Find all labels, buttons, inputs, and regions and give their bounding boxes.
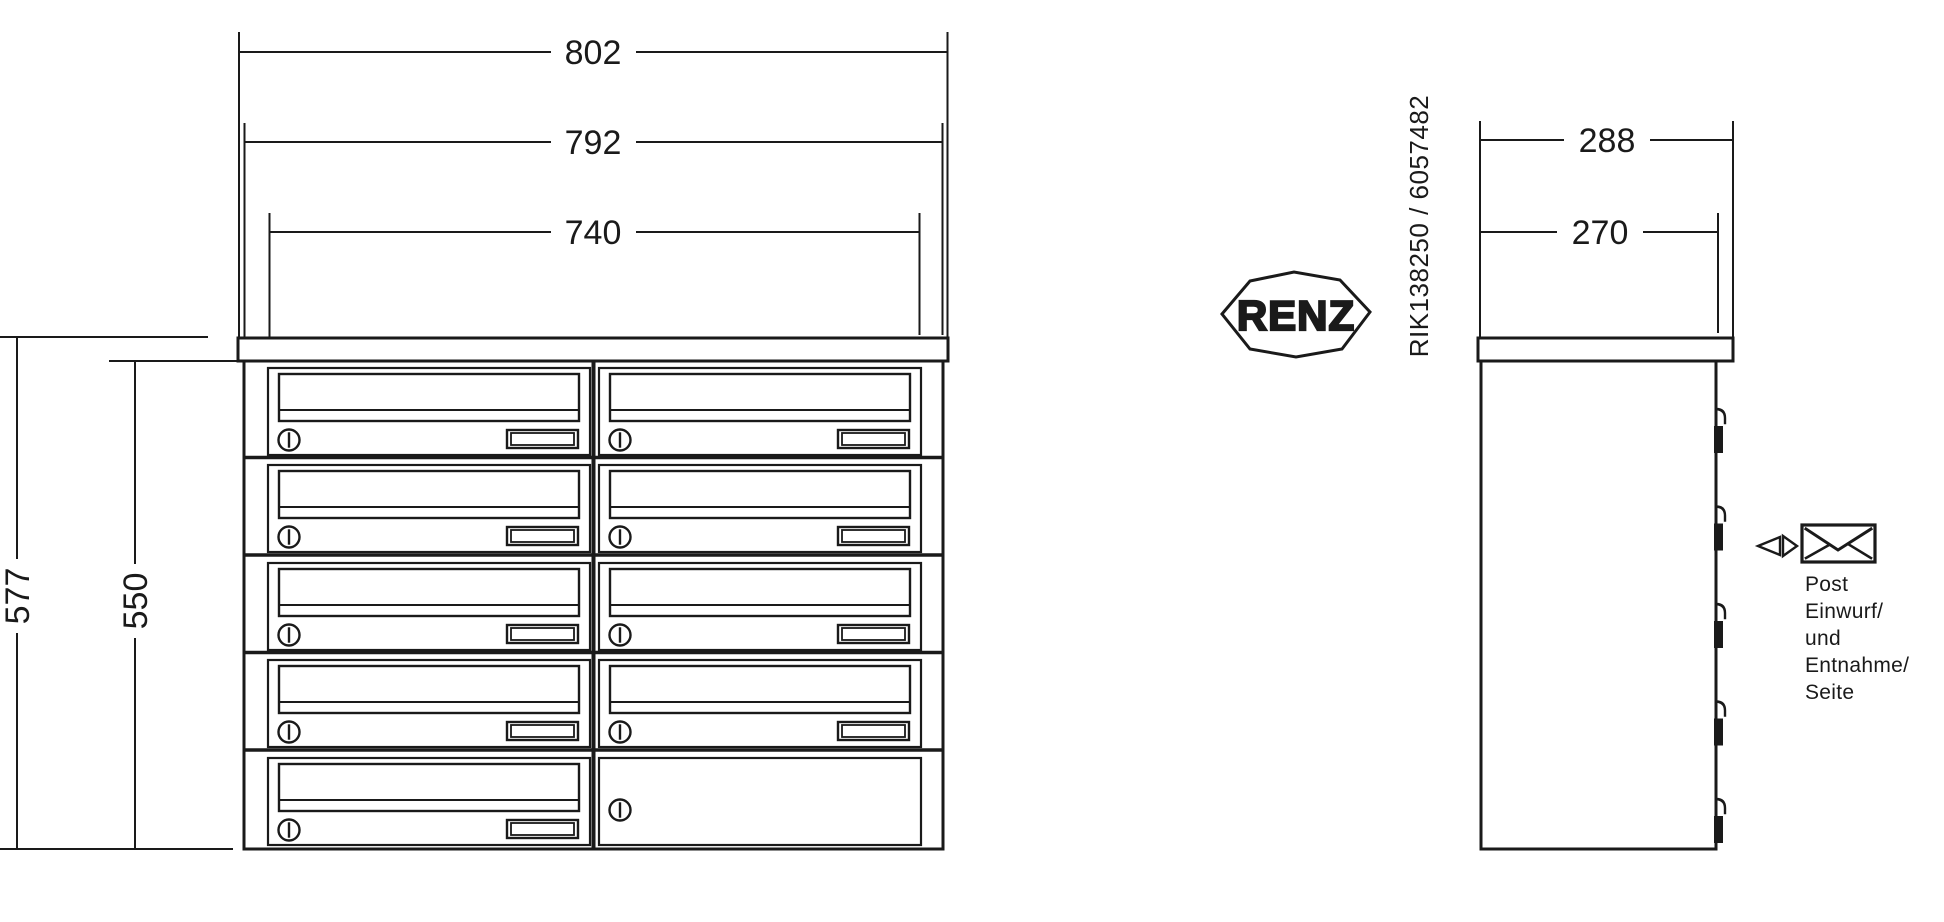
empty-compartment-r5-right: [599, 758, 921, 845]
dim-label-577: 577: [0, 568, 37, 625]
side-cabinet-body: [1481, 361, 1716, 849]
arrow-right-icon: [1783, 536, 1797, 556]
note-line-4: Entnahme/: [1805, 654, 1909, 677]
dim-label-792: 792: [565, 124, 622, 162]
mailbox-door-r1-left: [268, 368, 590, 455]
side-roof-cap: [1478, 338, 1733, 361]
arrow-left-icon: [1758, 537, 1780, 555]
note-line-3: und: [1805, 627, 1841, 650]
front-dimensions: [0, 33, 948, 849]
note-line-5: Seite: [1805, 681, 1854, 704]
front-roof-cap: [238, 338, 948, 361]
mailbox-door-r3-left: [268, 563, 590, 650]
part-number-label: RIK138250 / 6057482: [1404, 95, 1434, 358]
front-view: [238, 338, 948, 849]
drawing-canvas: 802 792 740 577 550 288 270: [0, 0, 1944, 922]
note-line-1: Post: [1805, 573, 1848, 596]
mailbox-door-r1-right: [599, 368, 921, 455]
mailbox-door-r3-right: [599, 563, 921, 650]
technical-drawing-sheet: 802 792 740 577 550 288 270: [0, 0, 1944, 922]
side-view: [1478, 338, 1733, 849]
mailbox-door-r4-right: [599, 660, 921, 747]
mailbox-door-r2-right: [599, 465, 921, 552]
renz-logo-text: RENZ: [1237, 292, 1355, 339]
brand-logo: RENZ: [1222, 272, 1370, 357]
mailbox-door-r5-left: [268, 758, 590, 845]
post-access-note: Post Einwurf/ und Entnahme/ Seite: [1758, 525, 1909, 704]
envelope-icon: [1802, 525, 1875, 562]
dim-label-740: 740: [565, 214, 622, 252]
dim-label-550: 550: [117, 573, 155, 630]
mailbox-door-r2-left: [268, 465, 590, 552]
mailbox-door-r4-left: [268, 660, 590, 747]
dim-label-802: 802: [565, 34, 622, 72]
dim-label-288: 288: [1579, 122, 1636, 160]
dim-label-270: 270: [1572, 214, 1629, 252]
note-line-2: Einwurf/: [1805, 600, 1883, 623]
